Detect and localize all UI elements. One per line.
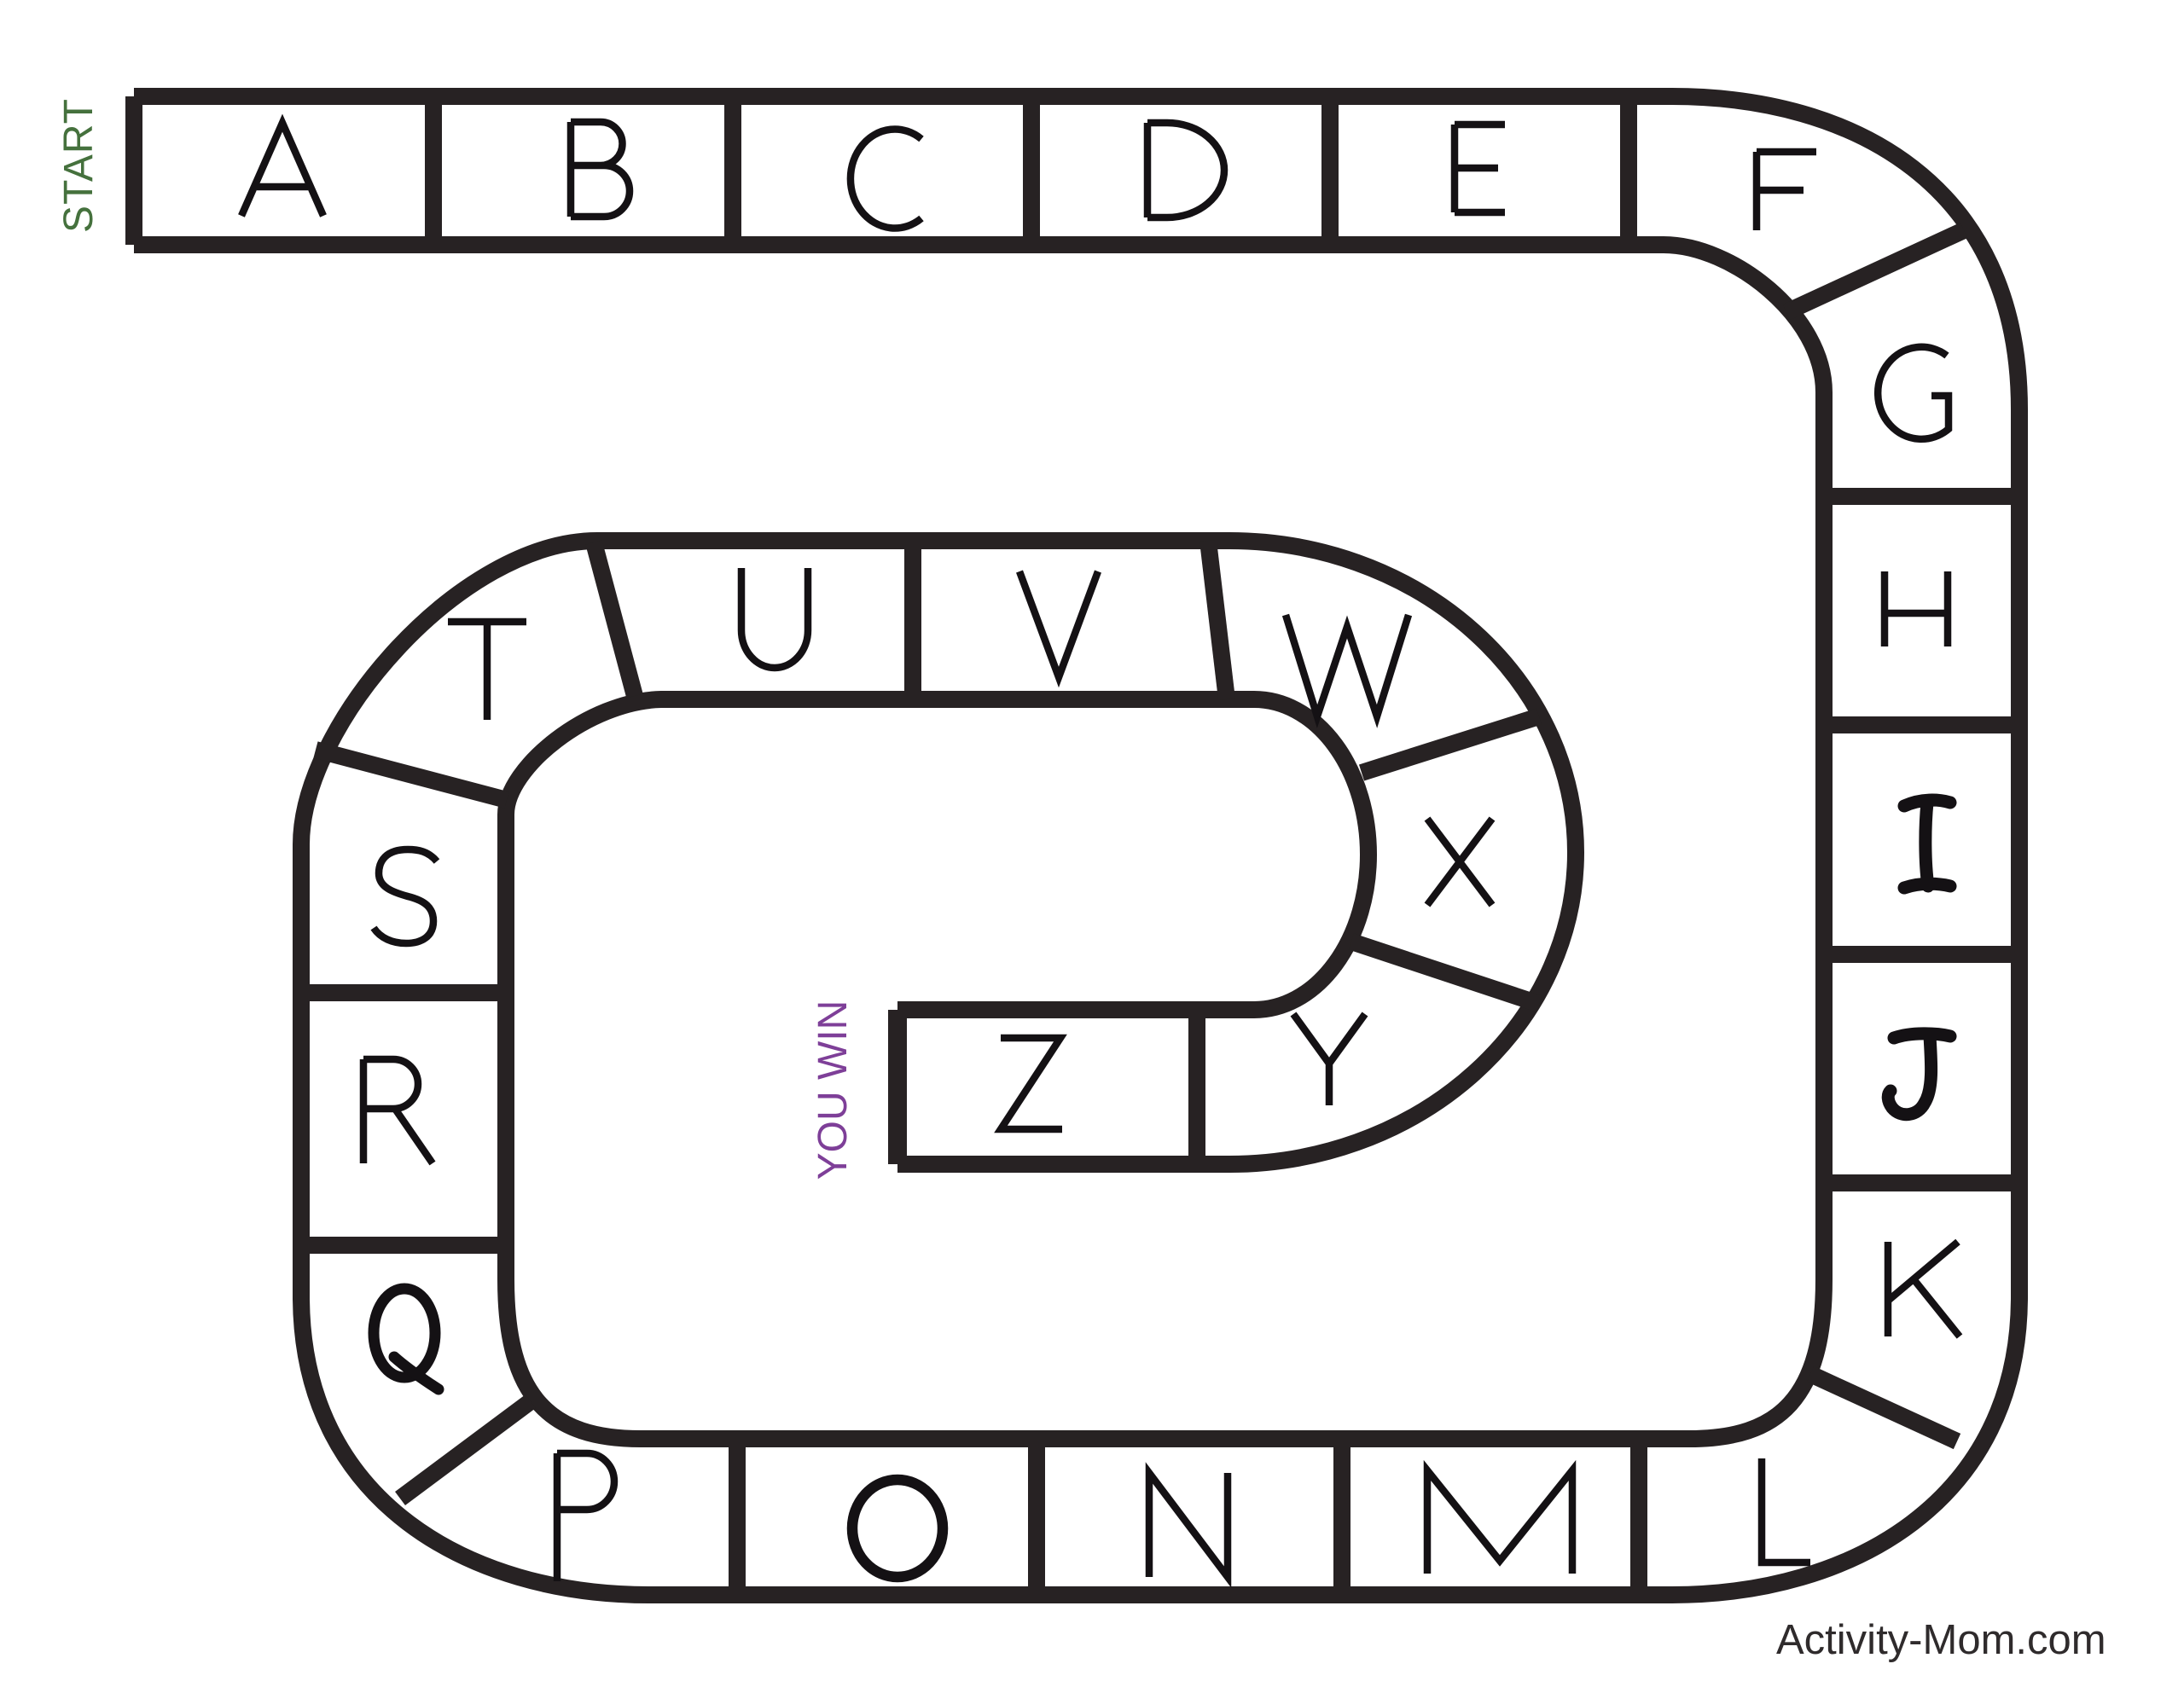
svg-text:YOU WIN: YOU WIN <box>810 1000 856 1180</box>
svg-text:Activity-Mom.com: Activity-Mom.com <box>1776 1617 2106 1663</box>
svg-text:START: START <box>56 98 102 233</box>
